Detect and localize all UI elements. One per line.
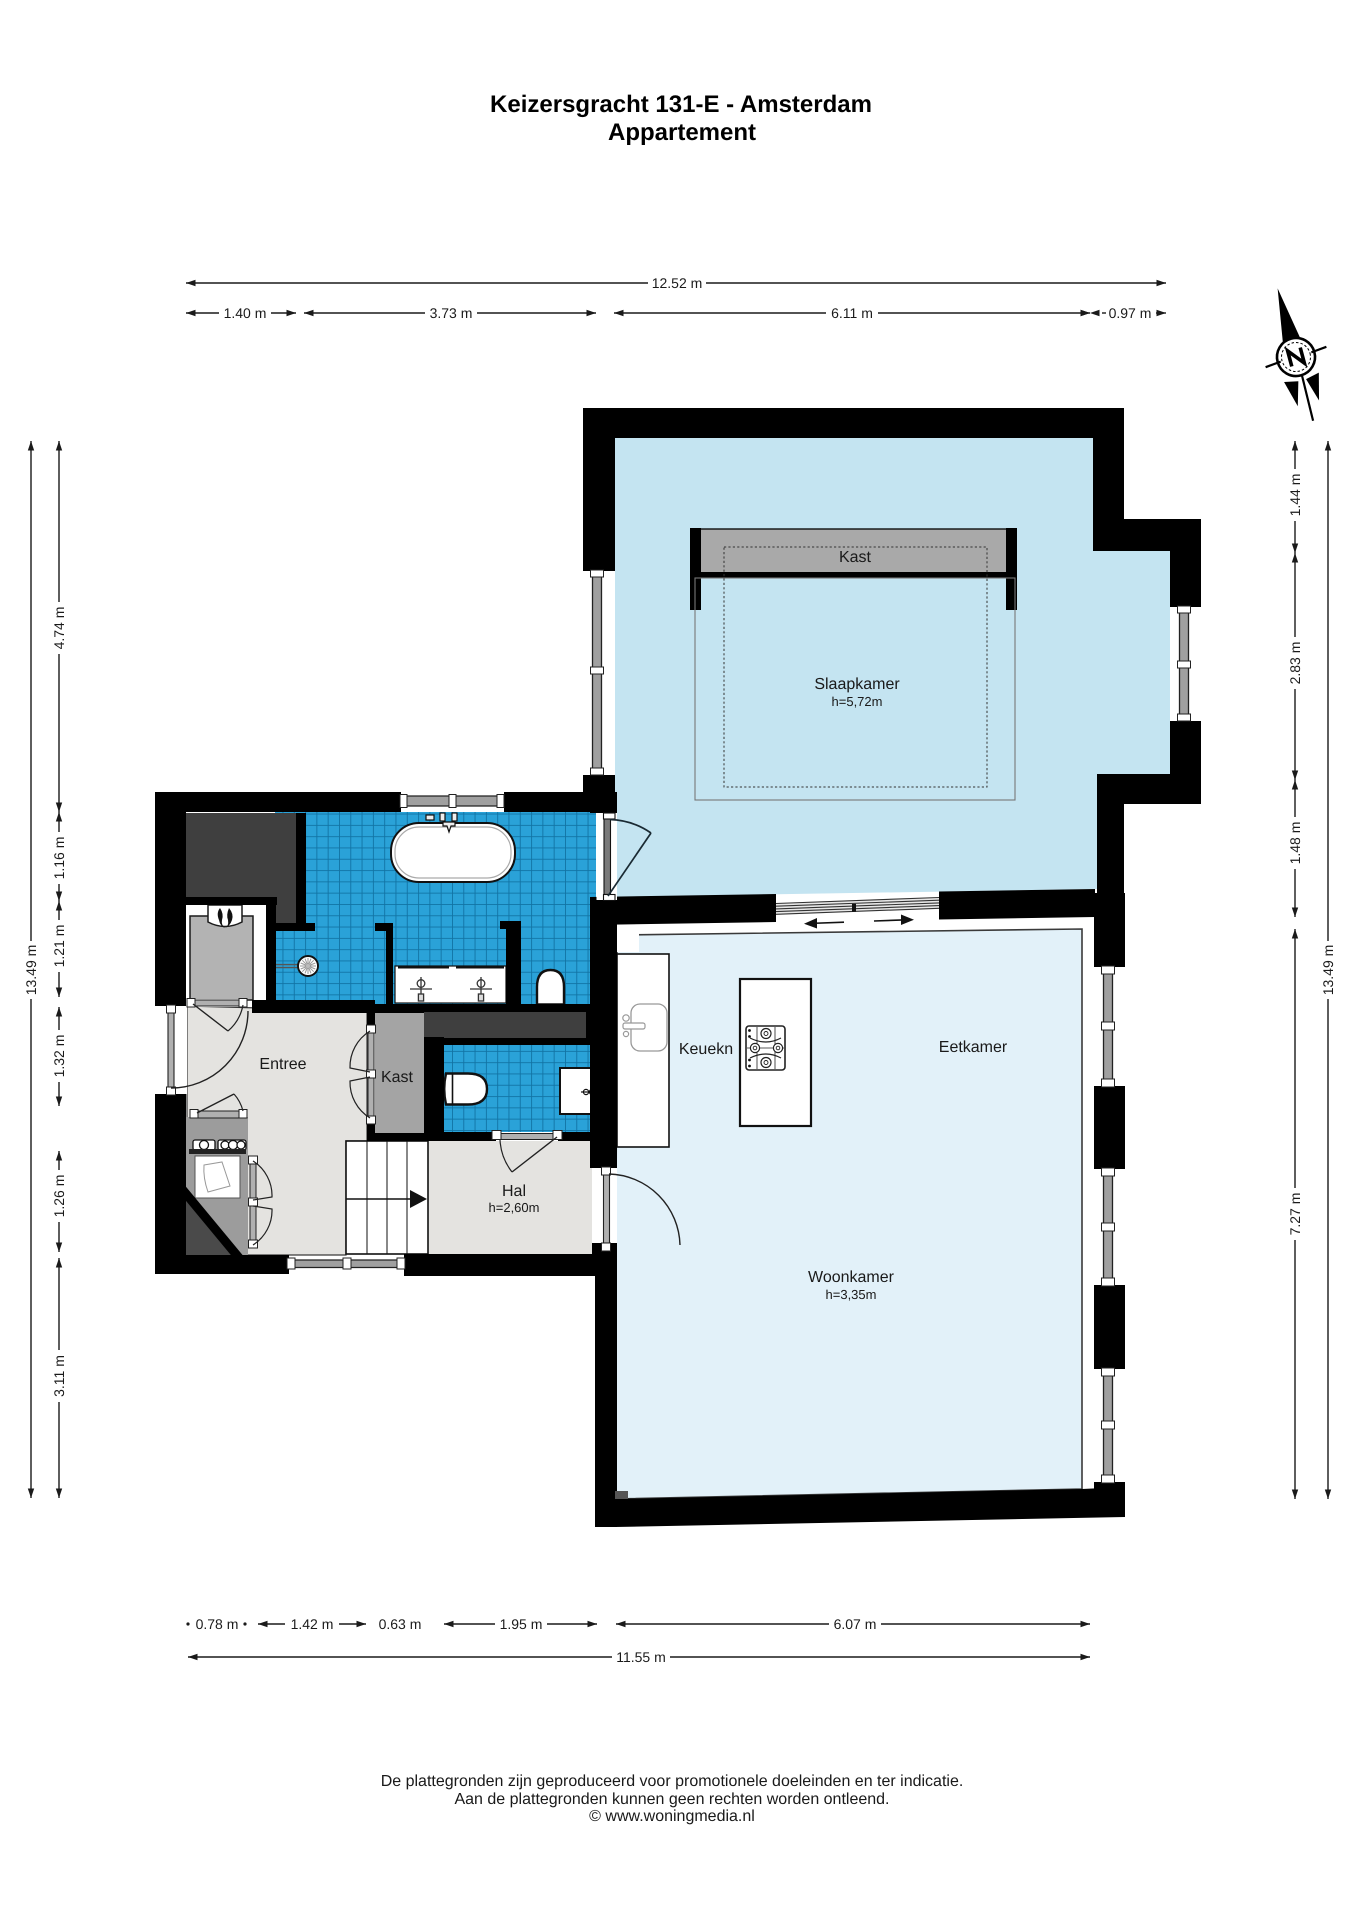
svg-text:Entree: Entree xyxy=(259,1056,306,1073)
svg-text:7.27 m: 7.27 m xyxy=(1287,1193,1303,1236)
svg-text:h=5,72m: h=5,72m xyxy=(832,694,883,709)
svg-text:12.52 m: 12.52 m xyxy=(652,275,703,291)
svg-text:© www.woningmedia.nl: © www.woningmedia.nl xyxy=(589,1808,755,1825)
svg-text:1.95 m: 1.95 m xyxy=(500,1616,543,1632)
svg-text:0.97 m: 0.97 m xyxy=(1109,305,1152,321)
svg-text:Eetkamer: Eetkamer xyxy=(939,1039,1008,1056)
svg-text:1.48 m: 1.48 m xyxy=(1287,822,1303,865)
svg-text:0.63 m: 0.63 m xyxy=(379,1616,422,1632)
svg-text:1.16 m: 1.16 m xyxy=(51,837,67,880)
svg-text:4.74 m: 4.74 m xyxy=(51,607,67,650)
svg-text:Aan de plattegronden kunnen ge: Aan de plattegronden kunnen geen rechten… xyxy=(454,1791,889,1808)
svg-text:Kast: Kast xyxy=(381,1069,414,1086)
svg-text:1.32 m: 1.32 m xyxy=(51,1035,67,1078)
svg-text:6.11 m: 6.11 m xyxy=(831,305,873,321)
svg-text:1.42 m: 1.42 m xyxy=(291,1616,334,1632)
svg-text:11.55 m: 11.55 m xyxy=(616,1649,666,1665)
svg-text:13.49 m: 13.49 m xyxy=(23,945,39,996)
svg-text:1.44 m: 1.44 m xyxy=(1287,474,1303,517)
svg-text:Appartement: Appartement xyxy=(608,119,756,146)
svg-text:3.73 m: 3.73 m xyxy=(430,305,473,321)
svg-text:1.40 m: 1.40 m xyxy=(224,305,267,321)
svg-text:Keuekn: Keuekn xyxy=(679,1041,733,1058)
svg-text:6.07 m: 6.07 m xyxy=(834,1616,877,1632)
svg-text:13.49 m: 13.49 m xyxy=(1320,945,1336,996)
svg-text:h=3,35m: h=3,35m xyxy=(826,1287,877,1302)
svg-text:3.11 m: 3.11 m xyxy=(51,1355,67,1397)
svg-text:De plattegronden zijn geproduc: De plattegronden zijn geproduceerd voor … xyxy=(381,1773,964,1790)
svg-text:Woonkamer: Woonkamer xyxy=(808,1269,895,1286)
svg-text:1.21 m: 1.21 m xyxy=(51,925,67,968)
svg-text:Keizersgracht 131-E - Amsterda: Keizersgracht 131-E - Amsterdam xyxy=(490,91,872,118)
svg-text:Kast: Kast xyxy=(839,549,872,566)
svg-text:0.78 m: 0.78 m xyxy=(196,1616,239,1632)
svg-text:Hal: Hal xyxy=(502,1183,526,1200)
svg-text:Slaapkamer: Slaapkamer xyxy=(814,676,900,693)
svg-text:h=2,60m: h=2,60m xyxy=(489,1200,540,1215)
svg-text:1.26 m: 1.26 m xyxy=(51,1175,67,1218)
svg-text:2.83 m: 2.83 m xyxy=(1287,642,1303,685)
